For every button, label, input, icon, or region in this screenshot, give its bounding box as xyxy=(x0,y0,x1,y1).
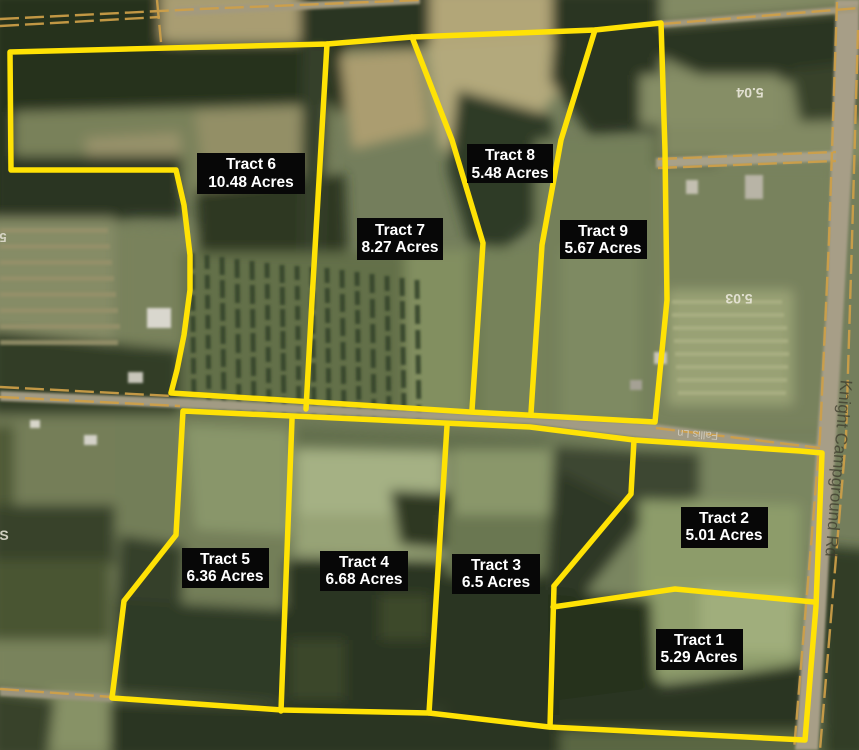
svg-text:10.48 Acres: 10.48 Acres xyxy=(208,174,294,191)
svg-text:Tract 1: Tract 1 xyxy=(674,632,724,649)
svg-text:5.67 Acres: 5.67 Acres xyxy=(565,240,642,257)
svg-text:Tract 3: Tract 3 xyxy=(471,557,521,574)
svg-text:5.01 Acres: 5.01 Acres xyxy=(686,527,763,544)
svg-text:Tract 4: Tract 4 xyxy=(339,554,389,571)
svg-text:Tract 2: Tract 2 xyxy=(699,510,749,527)
svg-text:Tract 7: Tract 7 xyxy=(375,222,425,239)
svg-text:6.5 Acres: 6.5 Acres xyxy=(462,574,530,591)
svg-text:8.27 Acres: 8.27 Acres xyxy=(362,239,439,256)
svg-text:Tract 5: Tract 5 xyxy=(200,551,250,568)
svg-text:Tract 8: Tract 8 xyxy=(485,147,535,164)
svg-text:5.29 Acres: 5.29 Acres xyxy=(661,649,738,666)
svg-text:6.68 Acres: 6.68 Acres xyxy=(326,571,403,588)
svg-text:6.36 Acres: 6.36 Acres xyxy=(187,568,264,585)
svg-text:Tract 6: Tract 6 xyxy=(226,156,276,173)
svg-text:5.48 Acres: 5.48 Acres xyxy=(472,165,549,182)
svg-text:5.04: 5.04 xyxy=(736,85,763,101)
svg-text:5: 5 xyxy=(0,230,7,245)
svg-text:S: S xyxy=(0,527,9,543)
svg-text:5.03: 5.03 xyxy=(725,291,752,307)
svg-text:Tract 9: Tract 9 xyxy=(578,223,628,240)
